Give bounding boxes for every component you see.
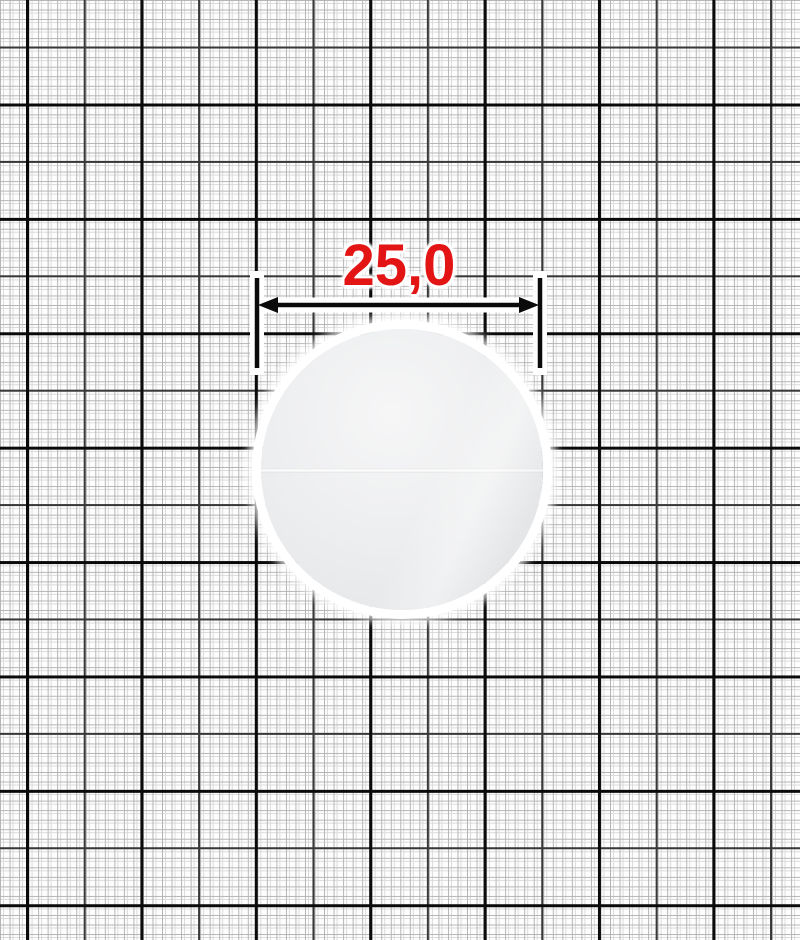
dimension-value-label: 25,0 xyxy=(251,237,547,295)
round-button-object xyxy=(261,329,543,610)
button-facet-highlight xyxy=(261,329,543,610)
photo-canvas: 25,0 xyxy=(0,0,800,940)
